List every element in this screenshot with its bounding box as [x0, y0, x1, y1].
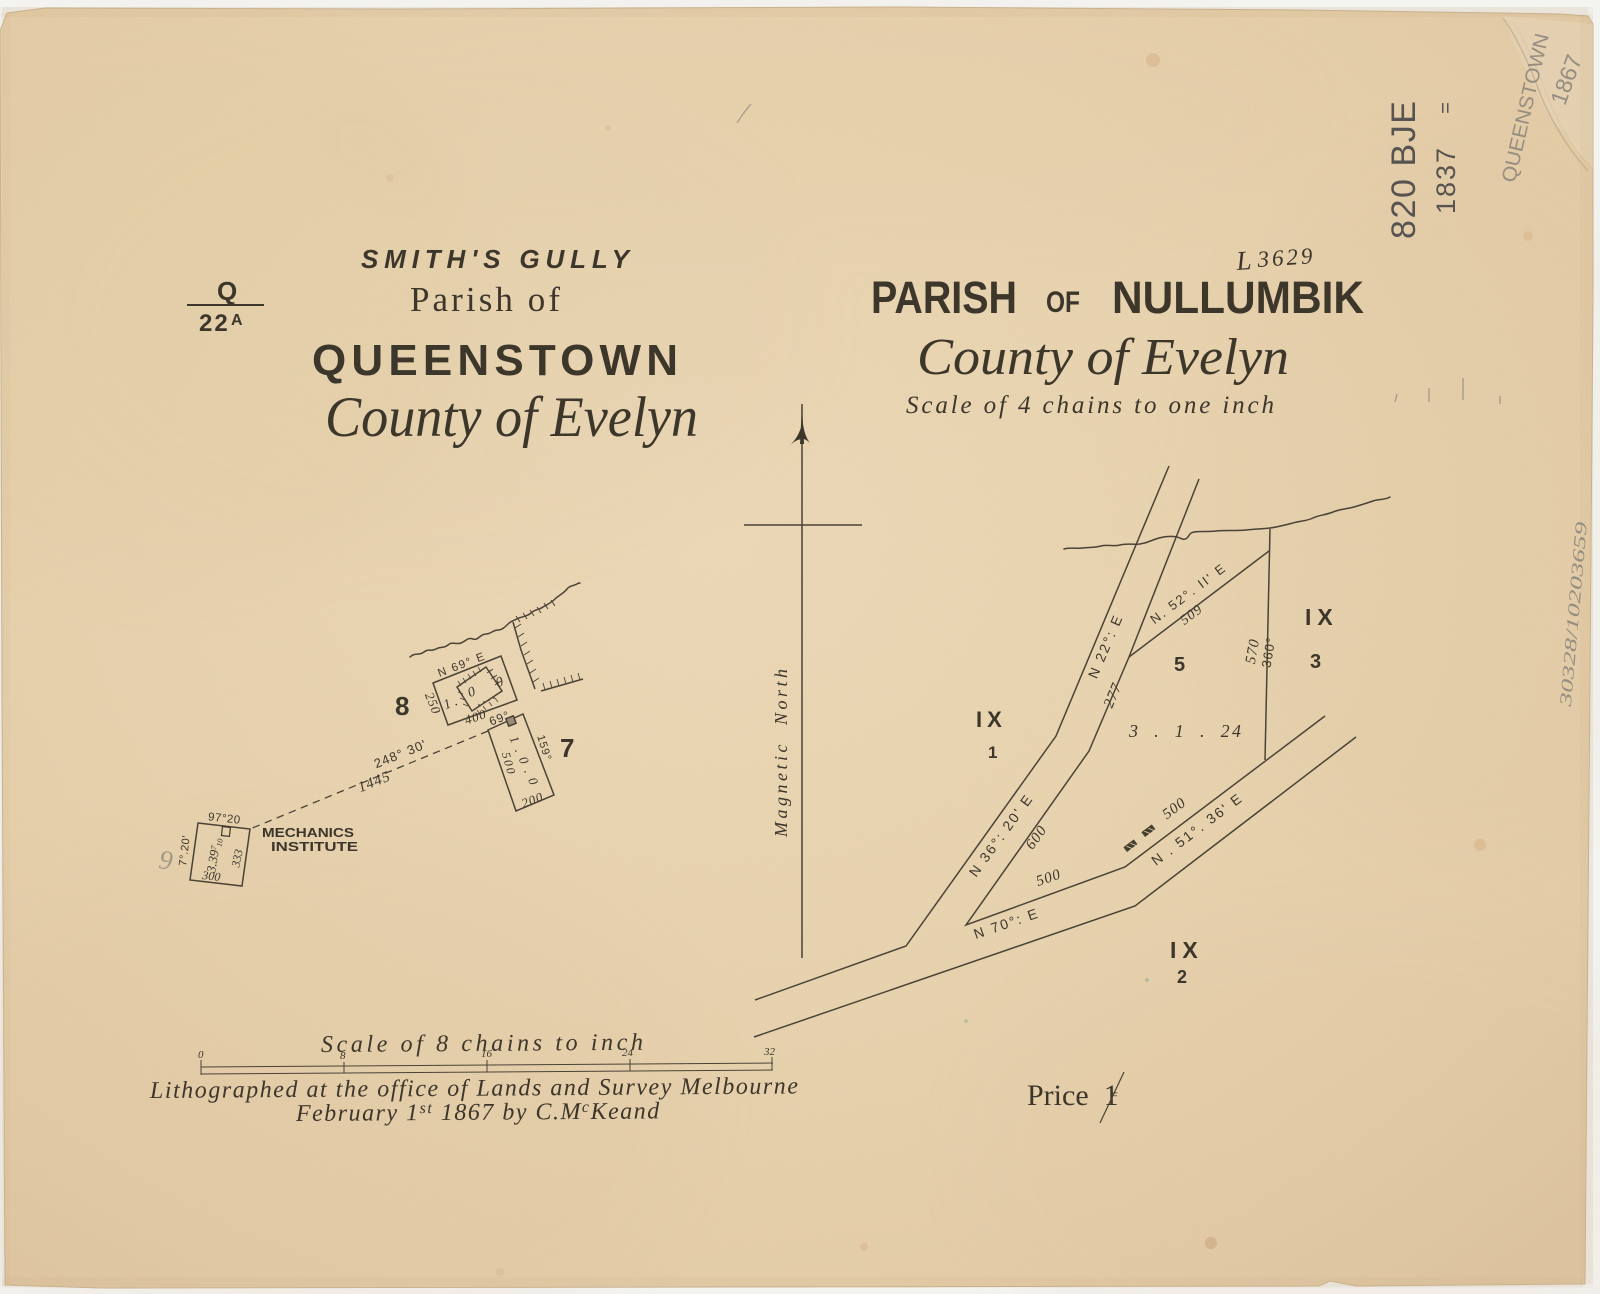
svg-text:8: 8: [340, 1050, 346, 1062]
svg-text:1: 1: [988, 743, 997, 762]
svg-text:Magnetic North: Magnetic North: [771, 669, 791, 838]
svg-text:INSTITUTE: INSTITUTE: [271, 839, 358, 854]
svg-text:16: 16: [481, 1048, 493, 1060]
svg-text:5: 5: [1174, 654, 1185, 676]
svg-text:Scale of 4 chains to one inch: Scale of 4 chains to one inch: [906, 392, 1274, 419]
svg-text:IX: IX: [976, 707, 1007, 732]
svg-text:1837: 1837: [1431, 146, 1461, 214]
svg-text:0: 0: [198, 1049, 204, 1061]
svg-text:NULLUMBIK: NULLUMBIK: [1112, 272, 1364, 323]
svg-text:SMITH'S GULLY: SMITH'S GULLY: [361, 244, 632, 274]
svg-text:MECHANICS: MECHANICS: [262, 825, 354, 840]
svg-text:February 1st 1867 by C.McKeand: February 1st 1867 by C.McKeand: [295, 1098, 661, 1127]
svg-text:IX: IX: [1305, 604, 1339, 630]
svg-text:Q: Q: [217, 276, 238, 306]
svg-text:Parish of: Parish of: [410, 280, 560, 319]
svg-text:300: 300: [201, 868, 221, 884]
svg-text:County of Evelyn: County of Evelyn: [325, 386, 698, 449]
svg-text:24: 24: [622, 1047, 634, 1059]
svg-text:3629: 3629: [1256, 243, 1317, 272]
svg-text:8: 8: [395, 691, 409, 721]
svg-text:Price 1: Price 1: [1027, 1079, 1119, 1112]
svg-text:IX: IX: [1170, 937, 1204, 963]
svg-text:A: A: [231, 312, 243, 329]
svg-text:OF: OF: [1046, 286, 1080, 319]
svg-text:County of Evelyn: County of Evelyn: [917, 329, 1289, 386]
svg-text:820 BJE: 820 BJE: [1385, 99, 1423, 239]
svg-text:=: =: [1110, 1088, 1118, 1103]
svg-text:2: 2: [1177, 967, 1187, 987]
svg-text:PARISH: PARISH: [871, 272, 1017, 323]
svg-text:3: 3: [1310, 651, 1321, 673]
svg-text:32: 32: [763, 1046, 776, 1058]
svg-text:7: 7: [560, 733, 574, 763]
svg-text:=: =: [1435, 102, 1457, 114]
svg-text:QUEENSTOWN: QUEENSTOWN: [312, 336, 678, 385]
svg-text:22: 22: [199, 310, 230, 337]
